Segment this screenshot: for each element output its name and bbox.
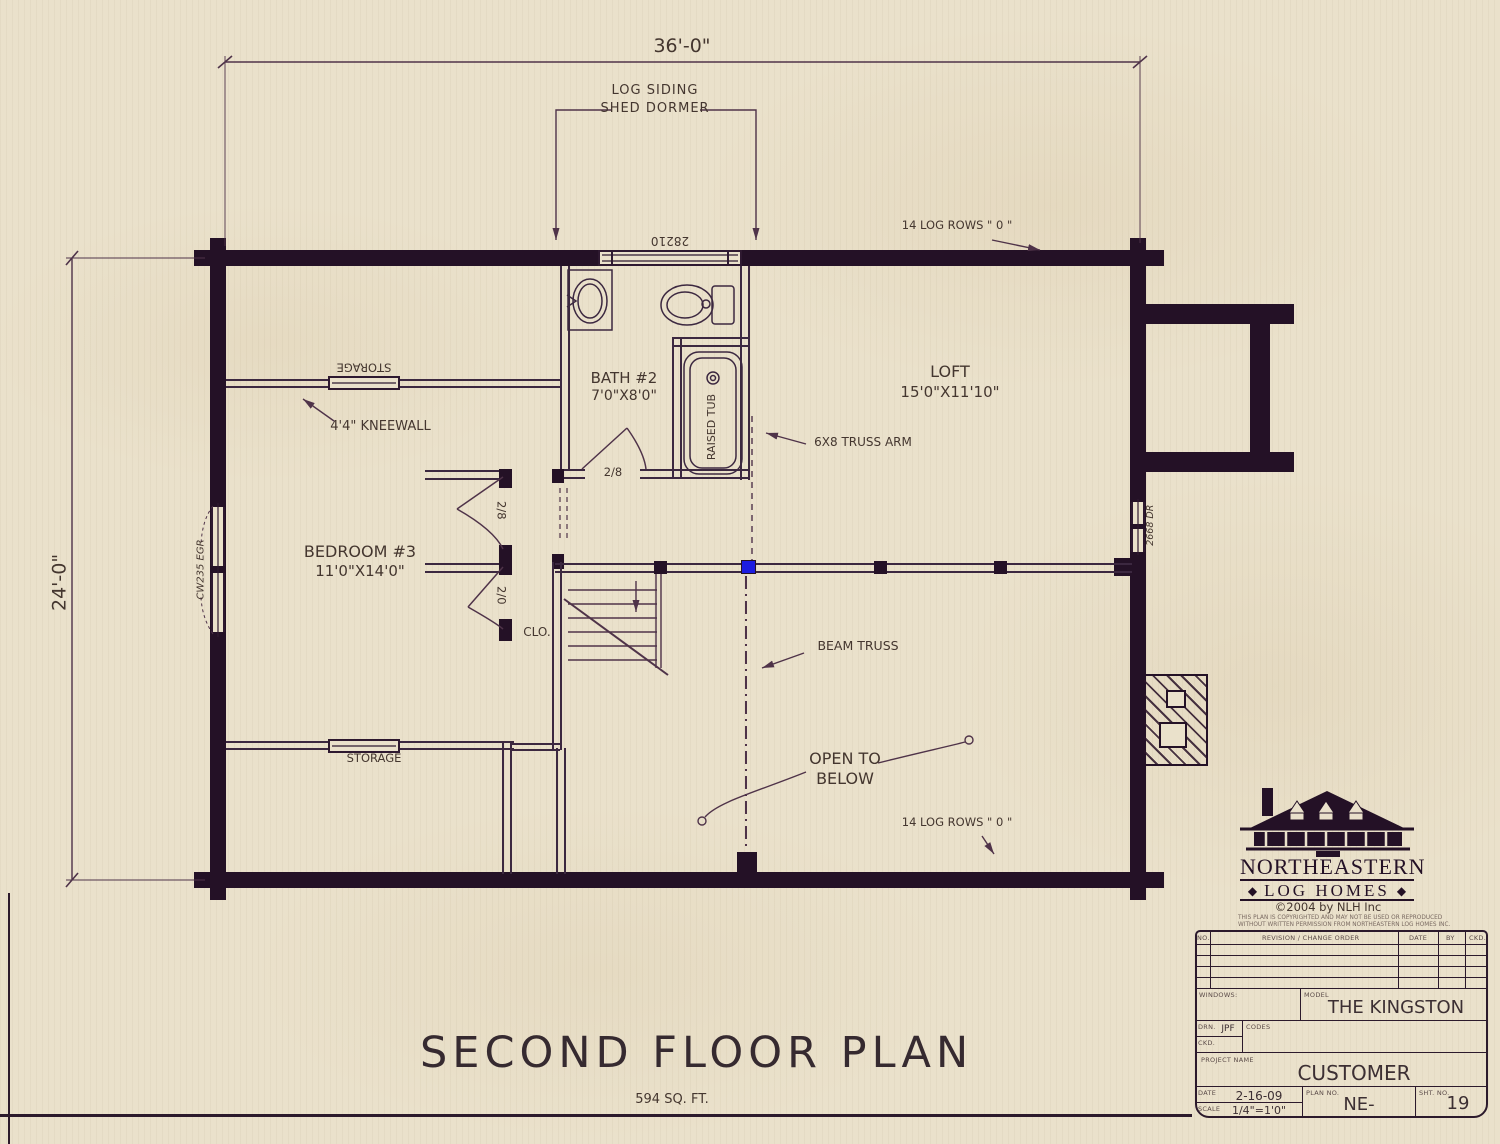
tb-scale-label: SCALE	[1198, 1105, 1220, 1113]
tb-grid-line	[1195, 977, 1488, 978]
tb-drn-value: JPF	[1216, 1024, 1240, 1034]
blueprint-sheet: 36'-0" 24'-0" LOG SIDING SHED DORMER 14 …	[0, 0, 1500, 1144]
sheet-title: SECOND FLOOR PLAN	[420, 1030, 940, 1077]
tb-grid-line	[1195, 988, 1488, 989]
logo-name-line2: LOG HOMES	[1264, 881, 1390, 901]
tb-by-label: BY	[1446, 934, 1455, 942]
storage-label-bottom: STORAGE	[336, 752, 412, 765]
tb-grid-line	[1438, 930, 1439, 988]
tb-grid-line	[1210, 930, 1211, 988]
note-open-below-1: OPEN TO	[800, 750, 890, 768]
logo-fine-print-2: WITHOUT WRITTEN PERMISSION FROM NORTHEAS…	[1238, 922, 1416, 928]
note-beam-truss: BEAM TRUSS	[806, 639, 910, 653]
tb-project-value: CUSTOMER	[1274, 1061, 1434, 1085]
diamond-icon: ◆	[1248, 884, 1257, 899]
note-log-siding: LOG SIDING	[595, 84, 715, 98]
tb-grid-line	[1398, 930, 1399, 988]
tb-grid-line	[1195, 955, 1488, 956]
closet-label: CLO.	[515, 626, 559, 639]
room-bedroom-size: 11'0"X14'0"	[283, 563, 437, 580]
tb-grid-line	[1195, 966, 1488, 967]
tb-grid-line	[1415, 1086, 1416, 1116]
tb-date-value: 2-16-09	[1226, 1089, 1292, 1103]
tb-ckd-label: CKD.	[1198, 1039, 1215, 1047]
dim-top: 36'-0"	[622, 36, 742, 57]
tb-date-label: DATE	[1198, 1089, 1216, 1097]
tb-grid-line	[1195, 1052, 1488, 1053]
note-log-rows-bottom: 14 LOG ROWS " 0 "	[898, 816, 1016, 829]
stairs	[564, 574, 668, 675]
room-loft-size: 15'0"X11'10"	[888, 384, 1012, 401]
door-swings	[457, 428, 646, 629]
storage-label-top: STORAGE	[326, 361, 402, 374]
logo-copyright: ©2004 by NLH Inc	[1258, 901, 1398, 914]
tb-sheet-value: 19	[1436, 1093, 1480, 1114]
note-log-rows-top: 14 LOG ROWS " 0 "	[898, 219, 1016, 232]
door-tag-closet: 2/0	[495, 578, 508, 612]
tb-windows-label: WINDOWS:	[1199, 991, 1237, 999]
room-loft-name: LOFT	[898, 363, 1002, 381]
room-bath-name: BATH #2	[568, 370, 680, 387]
tb-plan-no-value: NE-	[1324, 1094, 1394, 1115]
tb-grid-line	[1195, 1020, 1488, 1021]
tb-rev-label: REVISION / CHANGE ORDER	[1262, 934, 1359, 942]
door-tag-bath: 2/8	[596, 466, 630, 479]
tb-no-label: NO.	[1197, 934, 1210, 942]
sheet-border-line	[0, 1114, 1192, 1117]
tb-project-label: PROJECT NAME	[1201, 1056, 1254, 1064]
sheet-border-line	[8, 893, 10, 1144]
sheet-area: 594 SQ. FT.	[602, 1093, 742, 1107]
note-shed-dormer: SHED DORMER	[585, 102, 725, 116]
logo-fine-print-1: THIS PLAN IS COPYRIGHTED AND MAY NOT BE …	[1238, 915, 1416, 921]
tb-ckd-col-label: CKD.	[1469, 934, 1486, 942]
window-tag-28210: 28210	[630, 234, 710, 247]
door-tag-bedroom: 2/8	[495, 493, 508, 527]
note-open-below-2: BELOW	[804, 770, 886, 788]
tb-drn-label: DRN.	[1198, 1023, 1216, 1031]
room-bedroom-name: BEDROOM #3	[278, 543, 442, 561]
tb-grid-line	[1195, 1036, 1242, 1037]
tb-grid-line	[1300, 988, 1301, 1020]
hidden-lines	[201, 416, 752, 850]
room-bath-size: 7'0"X8'0"	[568, 389, 680, 404]
window-detail-lines	[218, 251, 1138, 746]
note-truss-arm: 6X8 TRUSS ARM	[808, 436, 918, 449]
tb-grid-line	[1242, 1020, 1243, 1052]
logo-house-icon	[1240, 788, 1414, 857]
note-kneewall: 4'4" KNEEWALL	[298, 420, 463, 434]
tb-model-value: THE KINGSTON	[1308, 997, 1484, 1018]
tb-grid-line	[1195, 944, 1488, 945]
tb-scale-value: 1/4"=1'0"	[1224, 1104, 1294, 1117]
logo-name-line2-row: ◆ LOG HOMES ◆	[1240, 881, 1414, 901]
logo-name-line1: NORTHEASTERN	[1240, 855, 1414, 879]
fixture-raised-tub: RAISED TUB	[706, 367, 718, 487]
tb-codes-label: CODES	[1246, 1023, 1270, 1031]
tb-grid-line	[1465, 930, 1466, 988]
tb-grid-line	[1195, 1086, 1488, 1087]
tb-grid-line	[1302, 1086, 1303, 1116]
dim-left: 24'-0"	[50, 522, 71, 642]
door-tag-right: 2668 DR	[1146, 485, 1156, 565]
diamond-icon: ◆	[1397, 884, 1406, 899]
tb-date-col-label: DATE	[1409, 934, 1427, 942]
window-tag-egress: CW235 EGR	[196, 515, 207, 625]
